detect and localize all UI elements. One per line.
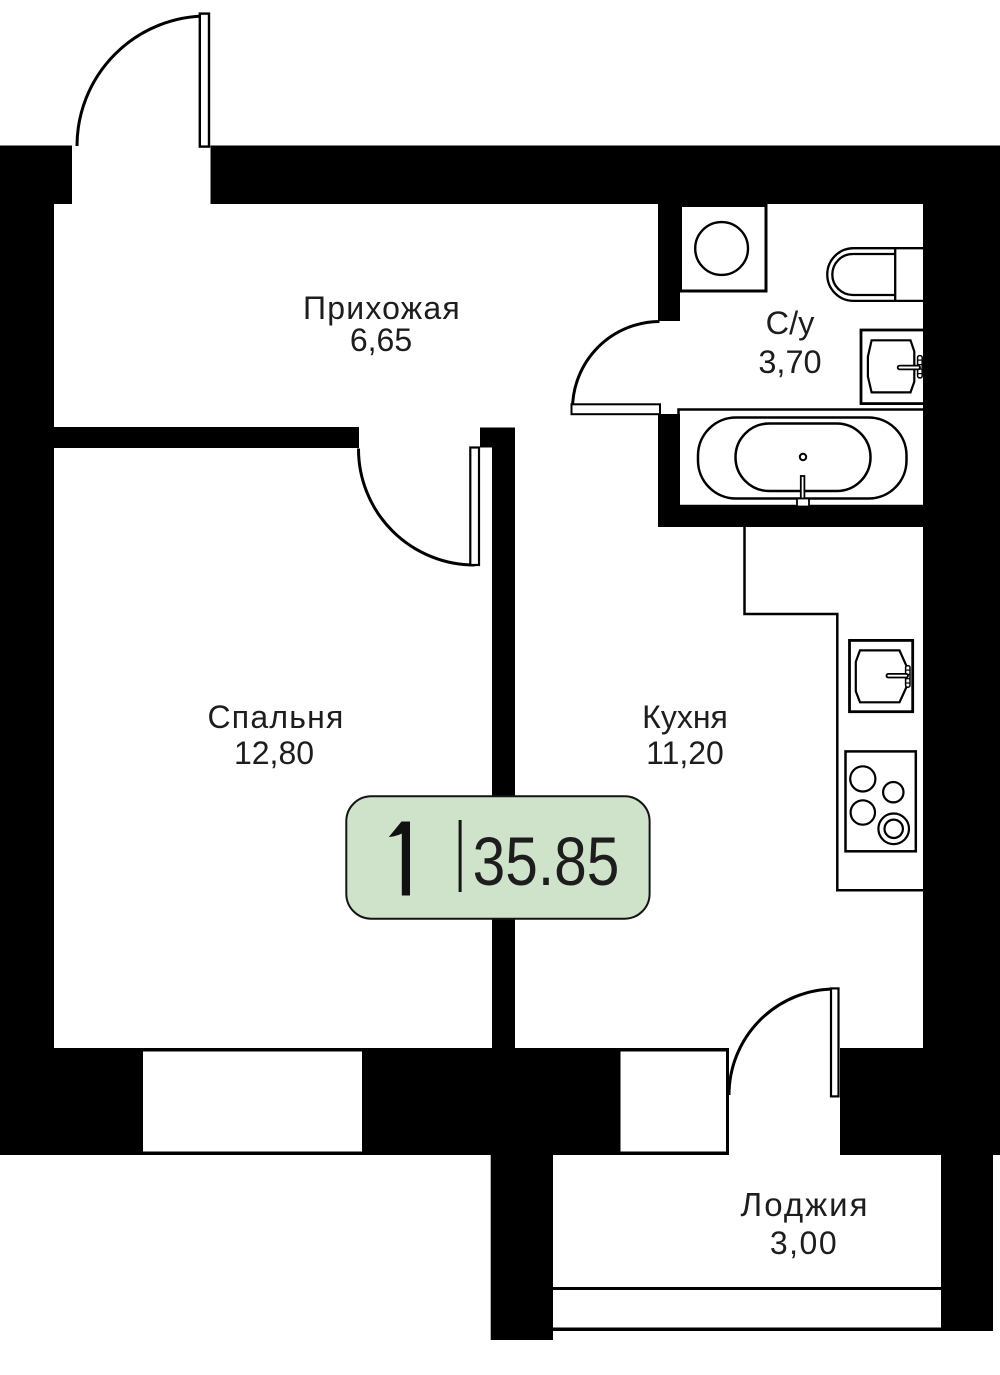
svg-text:Спальня: Спальня: [208, 699, 345, 735]
svg-text:3,70: 3,70: [758, 344, 821, 380]
svg-text:Прихожая: Прихожая: [303, 290, 461, 326]
svg-text:35.85: 35.85: [473, 823, 620, 901]
svg-text:С/у: С/у: [766, 305, 816, 341]
svg-text:12,80: 12,80: [234, 735, 314, 771]
svg-text:11,20: 11,20: [646, 735, 724, 771]
svg-text:6,65: 6,65: [350, 322, 412, 358]
svg-text:3,00: 3,00: [770, 1225, 838, 1261]
svg-text:Лоджия: Лоджия: [741, 1186, 870, 1223]
svg-text:Кухня: Кухня: [642, 699, 728, 735]
